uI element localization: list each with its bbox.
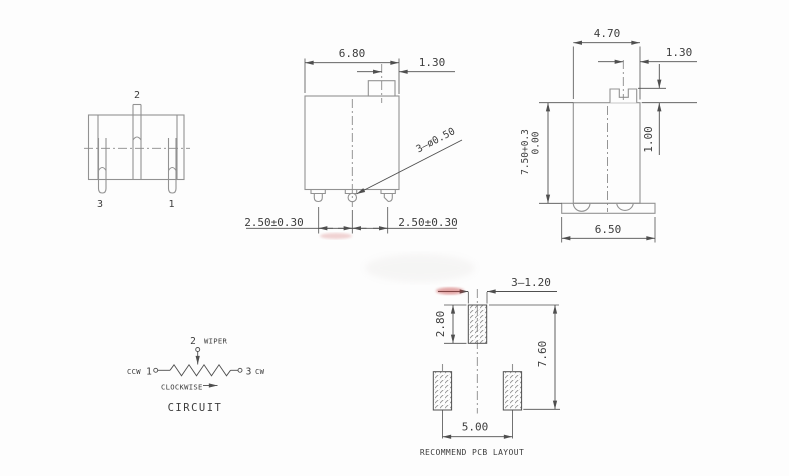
dim-boss-height: 1.00: [638, 64, 697, 155]
front-pin3-label: 3: [97, 199, 103, 210]
watermark-smudge: [365, 254, 475, 282]
circuit-wiper-label: WIPER: [204, 337, 228, 346]
pcb-layout: 3—1.20 2.80 7.60 5.00 RECOMMEND PCB LAYO…: [420, 276, 560, 457]
dim-base-width-label: 6.50: [595, 223, 622, 236]
dim-side-width-label: 4.70: [594, 27, 621, 40]
pcb-pad-top: [468, 305, 486, 343]
circuit-ccw-label: CCW: [127, 367, 141, 376]
dim-row-spacing-label: 7.60: [536, 341, 549, 368]
resistor-element: [170, 365, 231, 376]
terminal-1: [154, 368, 158, 372]
trimmer-potentiometer-drawing: 2 3 1 6.80 1.30: [0, 0, 789, 471]
wiper-terminal: [196, 348, 200, 352]
dim-top-tab-offset: 1.30: [357, 56, 455, 72]
circuit-title: CIRCUIT: [168, 402, 223, 414]
dim-pitch-right-label: 2.50±0.30: [398, 216, 458, 229]
circuit-pin3-label: 3: [246, 367, 252, 378]
side-standoff-feet: [573, 203, 633, 211]
watermark: [320, 233, 475, 295]
circuit-pin2-label: 2: [190, 336, 196, 347]
watermark-red-blob-2: [320, 233, 352, 239]
dim-pin-pitch: 2.50±0.30 2.50±0.30: [244, 207, 458, 234]
side-view: 4.70 1.30 1.00 7.50+0.3 0.00: [520, 27, 697, 243]
dim-pad-height-label: 2.80: [434, 311, 447, 338]
circuit-cw-label: CW: [255, 367, 265, 376]
dim-hole-size-label: 3—1.20: [511, 276, 551, 289]
front-pin2-label: 2: [134, 90, 140, 101]
dim-top-width-label: 6.80: [339, 47, 366, 60]
watermark-red-blob: [436, 287, 464, 294]
terminal-3: [238, 368, 242, 372]
circuit-pin1-label: 1: [146, 367, 152, 378]
front-pin-1: [169, 138, 177, 193]
dim-top-tab-offset-label: 1.30: [419, 56, 446, 69]
pcb-pad-right: [503, 372, 521, 410]
dim-boss-height-label: 1.00: [642, 126, 655, 153]
front-pin-2: [133, 105, 141, 180]
pcb-pad-left: [433, 372, 451, 410]
top-pins: [311, 190, 395, 202]
top-view: 6.80 1.30 3—ø0.50 2.50±0.30 2.50±0.30: [244, 47, 462, 234]
dim-slot-offset: 1.30: [598, 46, 697, 62]
dim-overall-height-label: 7.50+0.3: [520, 129, 531, 175]
clockwise-label: CLOCKWISE: [161, 383, 203, 392]
dim-pitch-left-label: 2.50±0.30: [244, 216, 304, 229]
front-pin-3: [99, 138, 107, 193]
dim-slot-offset-label: 1.30: [666, 46, 693, 59]
dim-overall-height-tol: 0.00: [531, 131, 542, 154]
circuit-diagram: 2 WIPER CCW 1 3 CW CLOCKWISE CIRCUIT: [127, 336, 265, 414]
dim-pad-spacing: 5.00: [443, 421, 513, 437]
callout-pin-diameter-label: 3—ø0.50: [415, 126, 457, 155]
pcb-title: RECOMMEND PCB LAYOUT: [420, 448, 524, 457]
callout-pin-diameter: 3—ø0.50: [357, 126, 463, 194]
dim-pad-spacing-label: 5.00: [462, 421, 489, 434]
front-pin1-label: 1: [168, 199, 174, 210]
side-body-outline: [573, 103, 640, 204]
front-body-outline: [89, 115, 185, 180]
front-view: 2 3 1: [84, 90, 190, 210]
dim-overall-height: 7.50+0.3 0.00: [520, 103, 573, 204]
dim-base-width: 6.50: [562, 217, 655, 243]
dim-row-spacing: 7.60: [489, 305, 560, 409]
dim-pad-height: 2.80: [434, 305, 467, 343]
